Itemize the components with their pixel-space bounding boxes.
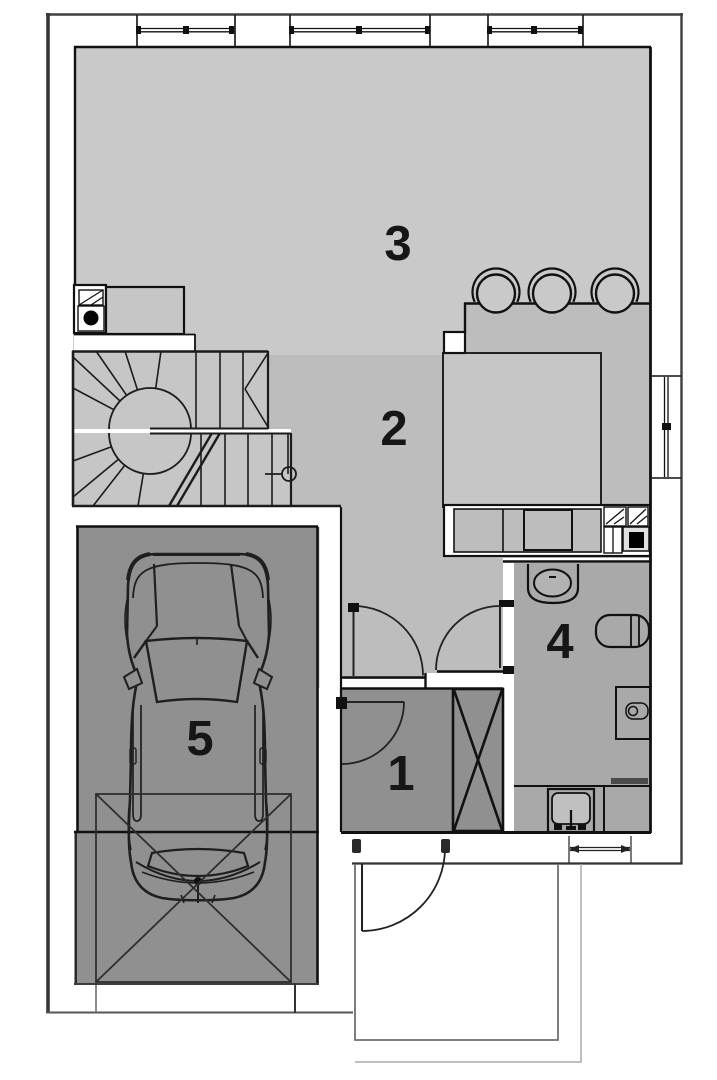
svg-text:4: 4	[546, 615, 573, 669]
svg-text:5: 5	[186, 712, 213, 766]
svg-text:2: 2	[380, 402, 407, 456]
svg-text:1: 1	[387, 747, 414, 801]
svg-text:3: 3	[384, 217, 411, 271]
